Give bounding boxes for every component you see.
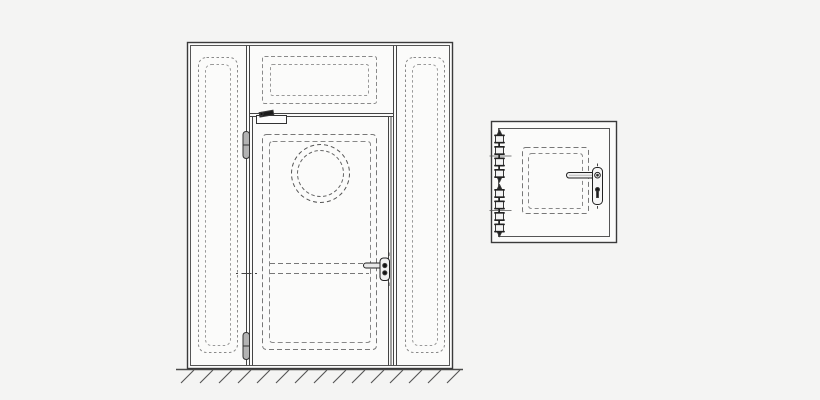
door-closer-pivot xyxy=(260,112,263,115)
door-drawings-svg xyxy=(0,0,820,400)
technical-drawing-page xyxy=(0,0,820,400)
door-assembly-front-view xyxy=(176,43,463,384)
handle-rose xyxy=(383,263,387,267)
cylinder-keyhole xyxy=(383,271,387,275)
inspection-hatch-front-view xyxy=(490,122,617,243)
handle-backplate xyxy=(380,258,390,281)
hatch-keyhole-stem xyxy=(597,191,599,198)
ground-hatching xyxy=(181,370,460,383)
hatch-handle-pivot-dot xyxy=(597,174,599,176)
bottom-hinge xyxy=(243,333,250,360)
top-hinge xyxy=(243,132,250,159)
